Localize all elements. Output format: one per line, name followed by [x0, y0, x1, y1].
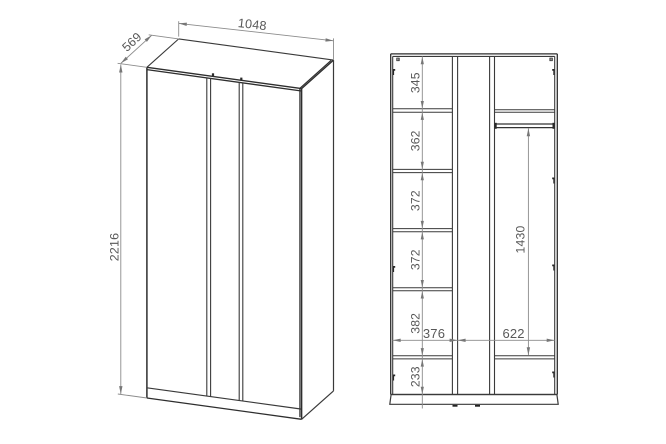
svg-text:372: 372	[409, 190, 423, 211]
svg-text:345: 345	[409, 72, 423, 93]
svg-text:382: 382	[409, 313, 423, 334]
svg-text:622: 622	[502, 326, 524, 341]
svg-text:1430: 1430	[513, 226, 527, 254]
svg-text:2216: 2216	[108, 233, 122, 261]
svg-text:233: 233	[409, 366, 423, 387]
svg-text:569: 569	[119, 30, 144, 55]
svg-text:362: 362	[409, 130, 423, 151]
svg-text:376: 376	[423, 326, 445, 341]
svg-text:372: 372	[409, 249, 423, 270]
